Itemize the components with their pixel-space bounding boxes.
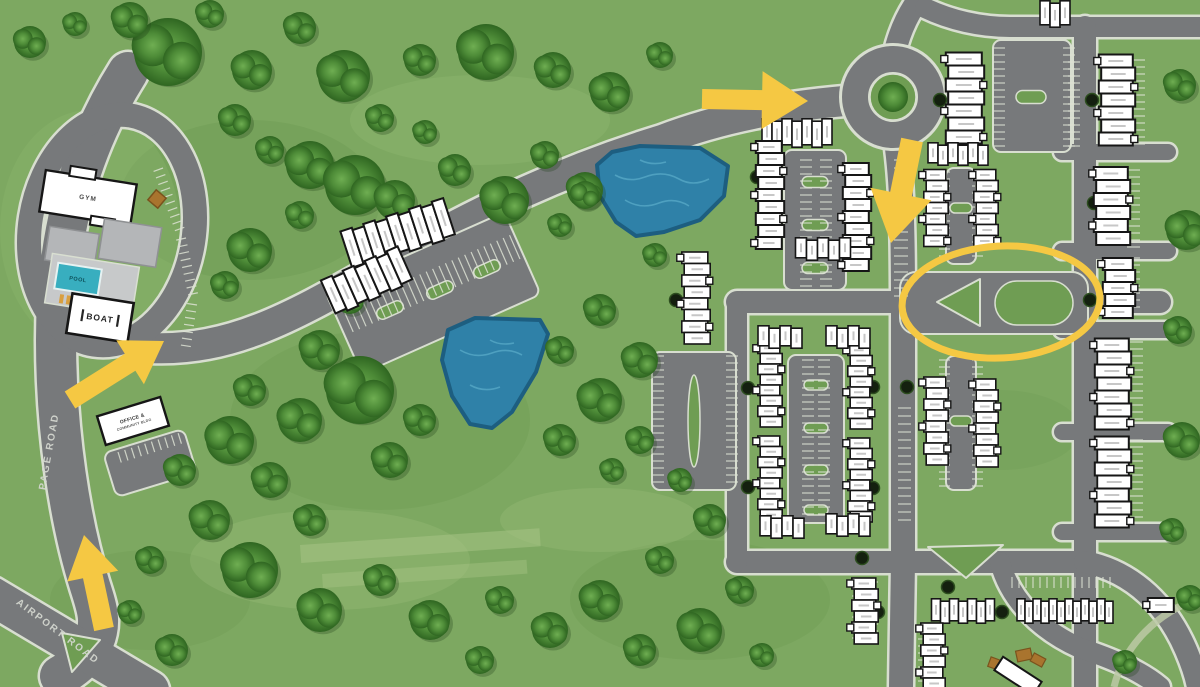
unit-detail <box>980 406 990 408</box>
unit-detail <box>930 218 940 220</box>
unit-detail <box>980 607 982 617</box>
unit-stoop <box>751 240 758 247</box>
tree <box>638 436 653 451</box>
unit-stoop <box>868 410 875 417</box>
green-island <box>804 423 828 433</box>
unit-detail <box>1104 396 1119 398</box>
street-tree <box>901 381 914 394</box>
tree <box>249 64 271 86</box>
green-island <box>995 281 1073 325</box>
unit-stoop <box>838 262 845 269</box>
unit-detail <box>932 148 934 157</box>
tree <box>453 165 471 183</box>
unit-stoop <box>1131 136 1138 143</box>
unit-detail <box>859 627 870 629</box>
unit-detail <box>785 331 787 340</box>
tree <box>148 556 163 571</box>
tree <box>267 475 287 495</box>
tree <box>226 433 252 459</box>
tree <box>378 114 393 129</box>
unit-detail <box>953 605 955 615</box>
unit-detail <box>1108 60 1123 62</box>
unit-detail <box>1107 481 1122 483</box>
unit-stoop <box>780 168 787 175</box>
unit-detail <box>689 257 700 259</box>
unit-detail <box>763 170 774 172</box>
tree <box>653 251 666 264</box>
unit-detail <box>764 389 774 391</box>
unit-detail <box>1076 607 1078 617</box>
unit-detail <box>1028 607 1030 617</box>
unit-detail <box>1111 287 1124 289</box>
unit-detail <box>852 180 863 182</box>
unit-detail <box>980 174 990 176</box>
unit-detail <box>930 382 940 384</box>
tree <box>583 191 598 206</box>
unit-detail <box>932 415 942 417</box>
unit-stoop <box>1089 222 1096 229</box>
green-island <box>1016 91 1046 104</box>
unit-detail <box>1107 507 1122 509</box>
unit-detail <box>856 495 866 497</box>
unit-detail <box>842 522 844 531</box>
tree <box>207 514 229 536</box>
unit-detail <box>763 218 774 220</box>
unit-detail <box>766 472 776 474</box>
unit-detail <box>927 650 937 652</box>
unit-detail <box>1044 8 1046 19</box>
unit-stoop <box>868 368 875 375</box>
unit-stoop <box>753 438 760 445</box>
unit-detail <box>1155 604 1166 606</box>
tree <box>543 151 558 166</box>
unit-detail <box>952 148 954 157</box>
unit-detail <box>956 110 972 112</box>
unit-stoop <box>778 501 785 508</box>
unit-detail <box>763 194 774 196</box>
building-row <box>932 599 995 623</box>
unit-detail <box>930 404 940 406</box>
green-island <box>688 375 700 467</box>
unit-detail <box>776 524 778 533</box>
tree <box>547 625 567 645</box>
unit-detail <box>930 174 940 176</box>
unit-detail <box>932 459 942 461</box>
unit-detail <box>764 368 774 370</box>
tree <box>501 193 527 219</box>
unit-detail <box>796 334 798 343</box>
unit-stoop <box>980 134 987 141</box>
tree <box>697 623 721 647</box>
unit-detail <box>929 683 939 685</box>
unit-detail <box>764 503 774 505</box>
unit-detail <box>831 519 833 528</box>
unit-detail <box>765 206 776 208</box>
unit-detail <box>932 229 942 231</box>
unit-detail <box>831 331 833 340</box>
unit-stoop <box>1127 518 1134 525</box>
unit-stoop <box>969 216 976 223</box>
unit-detail <box>982 439 992 441</box>
unit-stoop <box>1126 196 1133 203</box>
unit-detail <box>1111 125 1126 127</box>
tree <box>427 614 449 636</box>
unit-detail <box>956 58 972 60</box>
building-row <box>1090 437 1134 528</box>
pool: POOL <box>54 263 102 296</box>
unit-detail <box>766 126 768 137</box>
tree <box>607 86 629 108</box>
unit-detail <box>1111 73 1126 75</box>
unit-stoop <box>874 602 881 609</box>
unit-detail <box>864 334 866 343</box>
unit-detail <box>982 207 992 209</box>
unit-detail <box>929 639 939 641</box>
tree <box>558 435 576 453</box>
unit-detail <box>1104 494 1119 496</box>
unit-detail <box>1107 383 1122 385</box>
tree <box>637 355 657 375</box>
unit-stoop <box>706 323 713 330</box>
tree <box>246 562 277 593</box>
unit-detail <box>1106 238 1121 240</box>
green-island <box>802 177 828 188</box>
tree <box>482 44 513 75</box>
unit-detail <box>982 185 992 187</box>
tree <box>558 346 573 361</box>
tree <box>317 603 341 627</box>
unit-detail <box>765 158 776 160</box>
unit-stoop <box>751 192 758 199</box>
unit-detail <box>958 97 974 99</box>
unit-detail <box>774 334 776 343</box>
unit-detail <box>850 216 861 218</box>
unit-detail <box>763 331 765 340</box>
tree <box>317 344 339 366</box>
tree <box>418 415 436 433</box>
unit-detail <box>691 268 702 270</box>
unit-detail <box>1103 225 1118 227</box>
unit-stoop <box>969 381 976 388</box>
unit-stoop <box>843 389 850 396</box>
unit-stoop <box>994 194 1001 201</box>
unit-stoop <box>944 194 951 201</box>
unit-detail <box>980 428 990 430</box>
unit-detail <box>786 126 788 137</box>
unit-stoop <box>1131 84 1138 91</box>
unit-detail <box>1107 455 1122 457</box>
unit-detail <box>859 605 870 607</box>
unit-stoop <box>1090 394 1097 401</box>
unit-detail <box>864 522 866 531</box>
unit-detail <box>765 521 767 530</box>
unit-detail <box>932 185 942 187</box>
unit-detail <box>1108 138 1123 140</box>
unit-detail <box>816 128 818 139</box>
tree <box>73 20 86 33</box>
unit-stoop <box>677 300 684 307</box>
unit-detail <box>980 196 990 198</box>
tree <box>610 466 623 479</box>
shed-shape <box>1016 648 1033 662</box>
tree <box>170 645 188 663</box>
unit-detail <box>982 461 992 463</box>
unit-detail <box>854 442 864 444</box>
unit-detail <box>811 246 813 255</box>
unit-detail <box>944 607 946 617</box>
unit-detail <box>982 417 992 419</box>
tree <box>248 385 266 403</box>
unit-stoop <box>1127 466 1134 473</box>
unit-detail <box>980 384 990 386</box>
unit-detail <box>980 240 990 242</box>
unit-detail <box>854 349 864 351</box>
tree <box>1178 80 1196 98</box>
clubhouse-annex-shape <box>98 219 162 268</box>
unit-detail <box>932 393 942 395</box>
unit-stoop <box>1094 58 1101 65</box>
building-row <box>928 143 988 165</box>
unit-detail <box>856 402 866 404</box>
tree <box>178 465 196 483</box>
unit-detail <box>691 314 702 316</box>
unit-detail <box>850 264 861 266</box>
street-tree <box>856 552 869 565</box>
unit-detail <box>942 151 944 160</box>
unit-detail <box>930 448 940 450</box>
unit-detail <box>822 243 824 252</box>
building-row <box>916 623 948 687</box>
tree <box>233 115 251 133</box>
unit-detail <box>962 607 964 617</box>
unit-detail <box>1020 605 1022 615</box>
unit-stoop <box>1127 420 1134 427</box>
unit-detail <box>958 123 974 125</box>
roundabout-tree <box>878 82 908 112</box>
tree <box>418 55 436 73</box>
unit-detail <box>989 605 991 615</box>
tree <box>598 305 616 323</box>
tree <box>340 68 369 97</box>
unit-detail <box>1104 468 1119 470</box>
unit-detail <box>980 450 990 452</box>
building-row <box>826 514 870 536</box>
tree <box>1176 326 1191 341</box>
unit-stoop <box>1098 261 1105 268</box>
unit-detail <box>766 421 776 423</box>
unit-detail <box>1054 10 1056 21</box>
clubhouse-annex <box>98 219 162 268</box>
unit-stoop <box>919 423 926 430</box>
tree <box>658 51 672 65</box>
unit-detail <box>861 594 872 596</box>
unit-detail <box>854 370 864 372</box>
building-row <box>1098 258 1138 318</box>
unit-detail <box>956 84 972 86</box>
unit-detail <box>766 451 776 453</box>
unit-stoop <box>677 254 684 261</box>
unit-detail <box>833 246 835 255</box>
building-row <box>941 53 987 144</box>
unit-detail <box>962 151 964 160</box>
unit-detail <box>1103 199 1118 201</box>
tree <box>1170 526 1183 539</box>
unit-stoop <box>1090 492 1097 499</box>
unit-detail <box>689 280 700 282</box>
unit-detail <box>1068 605 1070 615</box>
unit-detail <box>1104 520 1119 522</box>
unit-detail <box>982 151 984 160</box>
unit-detail <box>1100 605 1102 615</box>
tree <box>760 651 773 664</box>
unit-detail <box>861 638 872 640</box>
unit-detail <box>1111 311 1124 313</box>
unit-stoop <box>753 387 760 394</box>
unit-detail <box>856 474 866 476</box>
unit-stoop <box>843 440 850 447</box>
unit-stoop <box>916 669 923 676</box>
unit-detail <box>930 196 940 198</box>
tree <box>478 656 493 671</box>
tree <box>28 37 46 55</box>
unit-detail <box>850 192 861 194</box>
unit-detail <box>1064 8 1066 19</box>
tree <box>127 15 147 35</box>
unit-stoop <box>916 625 923 632</box>
unit-detail <box>852 252 863 254</box>
street-tree <box>1086 94 1099 107</box>
unit-stoop <box>919 379 926 386</box>
unit-stoop <box>706 277 713 284</box>
unit-stoop <box>847 624 854 631</box>
tree <box>597 393 621 417</box>
unit-stoop <box>867 238 874 245</box>
unit-detail <box>972 148 974 157</box>
building-row <box>1089 167 1133 245</box>
unit-stoop <box>969 172 976 179</box>
tree <box>208 10 223 25</box>
unit-detail <box>850 240 861 242</box>
unit-stoop <box>944 238 951 245</box>
tree <box>550 65 570 85</box>
unit-stoop <box>1094 110 1101 117</box>
unit-stoop <box>941 56 948 63</box>
unit-stoop <box>1131 285 1138 292</box>
unit-detail <box>853 519 855 528</box>
unit-detail <box>1104 422 1119 424</box>
unit-detail <box>766 400 776 402</box>
green-island <box>802 220 828 231</box>
unit-detail <box>927 628 937 630</box>
unit-detail <box>1104 370 1119 372</box>
unit-detail <box>844 243 846 252</box>
unit-detail <box>798 524 800 533</box>
tree <box>638 645 656 663</box>
unit-detail <box>796 128 798 139</box>
unit-detail <box>787 521 789 530</box>
unit-stoop <box>969 425 976 432</box>
unit-detail <box>856 453 866 455</box>
unit-stoop <box>780 216 787 223</box>
unit-detail <box>1084 605 1086 615</box>
unit-stoop <box>944 401 951 408</box>
unit-stoop <box>838 214 845 221</box>
building-row <box>1017 599 1113 623</box>
unit-detail <box>1052 605 1054 615</box>
unit-detail <box>854 391 864 393</box>
tree <box>678 476 691 489</box>
unit-detail <box>852 228 863 230</box>
unit-detail <box>852 204 863 206</box>
unit-detail <box>1108 112 1123 114</box>
unit-detail <box>691 337 702 339</box>
unit-detail <box>856 360 866 362</box>
unit-stoop <box>1090 440 1097 447</box>
unit-detail <box>776 128 778 139</box>
unit-detail <box>764 440 774 442</box>
unit-detail <box>1104 344 1119 346</box>
tree <box>658 556 673 571</box>
unit-stoop <box>944 445 951 452</box>
unit-detail <box>766 358 776 360</box>
unit-detail <box>1044 607 1046 617</box>
unit-detail <box>854 463 864 465</box>
tree <box>378 575 396 593</box>
tree <box>163 42 200 79</box>
unit-detail <box>982 395 992 397</box>
unit-detail <box>763 146 774 148</box>
building-row <box>1143 598 1174 612</box>
unit-detail <box>1114 275 1127 277</box>
unit-detail <box>1107 409 1122 411</box>
unit-detail <box>980 218 990 220</box>
tree <box>423 128 436 141</box>
unit-stoop <box>919 172 926 179</box>
tree <box>297 413 321 437</box>
unit-stoop <box>751 144 758 151</box>
unit-detail <box>1106 186 1121 188</box>
unit-stoop <box>1090 342 1097 349</box>
tree <box>268 146 283 161</box>
site-map: GYMPOOLBOATOFFICE &COMMUNITY BLDGPAGE RO… <box>0 0 1200 687</box>
boat-storage-building: BOAT <box>66 293 133 342</box>
unit-detail <box>854 505 864 507</box>
unit-detail <box>764 482 774 484</box>
unit-detail <box>764 461 774 463</box>
unit-detail <box>1107 357 1122 359</box>
unit-detail <box>1106 212 1121 214</box>
shed <box>1016 648 1033 662</box>
building-row <box>760 516 804 538</box>
unit-detail <box>765 182 776 184</box>
unit-detail <box>763 242 774 244</box>
building-row <box>1040 1 1070 27</box>
tree <box>708 515 726 533</box>
unit-stoop <box>778 366 785 373</box>
unit-detail <box>826 126 828 137</box>
unit-detail <box>800 243 802 252</box>
unit-detail <box>853 331 855 340</box>
unit-stoop <box>1143 602 1150 609</box>
unit-detail <box>927 672 937 674</box>
unit-stoop <box>847 580 854 587</box>
unit-stoop <box>778 408 785 415</box>
unit-detail <box>1111 99 1126 101</box>
street-tree <box>942 581 955 594</box>
unit-stoop <box>994 403 1001 410</box>
tree <box>498 596 513 611</box>
unit-detail <box>1092 607 1094 617</box>
